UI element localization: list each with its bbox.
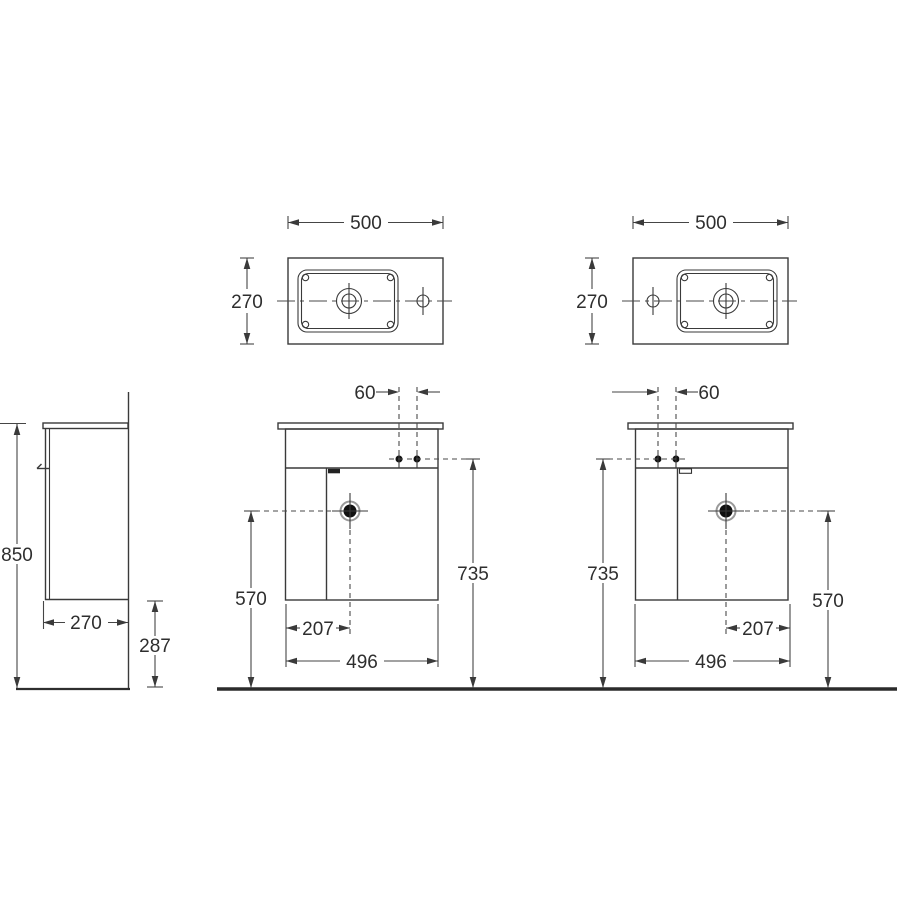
- dimension-label-60-right: 60: [698, 383, 719, 404]
- dimension-label-500-right: 500: [695, 213, 727, 234]
- dimension-270-side: 270: [43, 601, 128, 634]
- bowl-corner: [387, 321, 393, 327]
- dimension-500-right: 500: [633, 213, 788, 234]
- bowl-corner: [387, 274, 393, 280]
- dimension-label-850: 850: [1, 545, 33, 566]
- technical-drawing: 850 270 287: [0, 0, 900, 898]
- cabinet-body: [286, 429, 439, 600]
- dimension-label-270-side: 270: [70, 613, 102, 634]
- side-countertop: [43, 423, 128, 429]
- door-handle: [328, 469, 340, 474]
- dimension-label-207-left: 207: [302, 619, 334, 640]
- dimension-label-270-top-left: 270: [231, 292, 263, 313]
- side-view: 850 270 287: [0, 392, 171, 689]
- dimension-label-570-left: 570: [235, 589, 267, 610]
- dimension-label-270-top-right: 270: [576, 292, 608, 313]
- dimension-label-496-right: 496: [695, 652, 727, 673]
- dimension-label-735-left: 735: [457, 564, 489, 585]
- dimension-287: 287: [139, 601, 171, 687]
- bowl-corner: [681, 274, 687, 280]
- bowl-corner: [302, 274, 308, 280]
- dimension-270-top-left: 270: [231, 258, 263, 344]
- door-handle: [680, 469, 692, 474]
- dimension-60-left: 60: [354, 383, 440, 404]
- dimension-label-60-left: 60: [354, 383, 375, 404]
- bowl-corner: [681, 321, 687, 327]
- dimension-label-735-right: 735: [587, 564, 619, 585]
- bowl-corner: [302, 321, 308, 327]
- top-view-left: 500 270: [231, 213, 452, 344]
- dimension-735-right: 735: [587, 459, 619, 688]
- dimension-850: 850: [0, 424, 33, 689]
- dimension-label-500-left: 500: [350, 213, 382, 234]
- dimension-207-left: 207: [286, 604, 350, 667]
- dimension-500-left: 500: [288, 213, 443, 234]
- countertop: [278, 423, 443, 429]
- front-view-left: 60 735 570 207: [235, 383, 489, 688]
- bowl-corner: [766, 321, 772, 327]
- bowl-corner: [766, 274, 772, 280]
- dimension-270-top-right: 270: [576, 258, 608, 344]
- front-view-right: 60 735 570 207: [587, 383, 844, 688]
- dimension-label-496-left: 496: [346, 652, 378, 673]
- dimension-735-left: 735: [457, 459, 489, 688]
- dimension-207-right: 207: [726, 604, 790, 667]
- dimension-570-right: 570: [812, 511, 844, 688]
- dimension-label-287: 287: [139, 636, 171, 657]
- dimension-label-207-right: 207: [742, 619, 774, 640]
- drawing-canvas: 850 270 287: [0, 0, 900, 898]
- dimension-570-left: 570: [235, 511, 267, 688]
- top-view-right: 500 270: [576, 213, 797, 344]
- countertop: [628, 423, 793, 429]
- dimension-label-570-right: 570: [812, 591, 844, 612]
- dimension-60-right: 60: [612, 383, 720, 404]
